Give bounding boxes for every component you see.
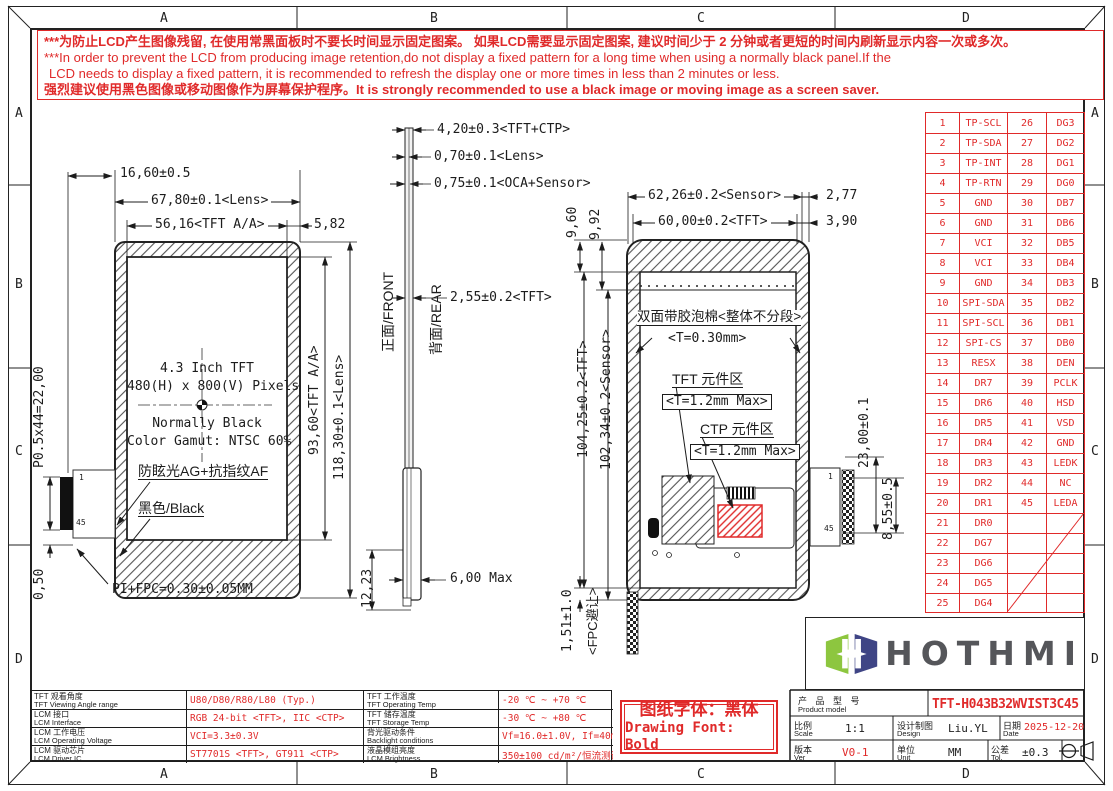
pin-table-cell: DG5 — [959, 573, 1007, 593]
pin-table-cell: GND — [959, 273, 1007, 293]
pin-table-cell: PCLK — [1046, 373, 1084, 393]
grid-letter-top-c: C — [697, 11, 705, 26]
pin-table-cell: 14 — [926, 373, 959, 393]
pin-table-cell: DR4 — [959, 433, 1007, 453]
spec-label-en: LCM Brightness — [367, 755, 495, 763]
pin-table-cell — [1046, 533, 1084, 553]
scale-label-en: Scale — [794, 729, 813, 738]
spec-value-cell: RGB 24-bit <TFT>, IIC <CTP> — [186, 709, 363, 727]
ctp-component-area-label: CTP 元件区 — [700, 422, 774, 438]
product-model-label-en: Product model — [798, 705, 846, 714]
pin-table-cell: DG6 — [959, 553, 1007, 573]
spec-value-text: ST7701S <TFT>, GT911 <CTP> — [190, 749, 360, 760]
pin-table-cell: 10 — [926, 293, 959, 313]
foam-thickness-label: <T=0.30mm> — [668, 332, 746, 346]
pin-table-cell: 44 — [1007, 473, 1046, 493]
pin-table-cell: TP-SDA — [959, 133, 1007, 153]
pin-table-cell: SPI-SCL — [959, 313, 1007, 333]
design-label-en: Design — [897, 729, 920, 738]
pin-table-cell: DEN — [1046, 353, 1084, 373]
pin-table-cell: TP-RTN — [959, 173, 1007, 193]
pin-table-cell: DB6 — [1046, 213, 1084, 233]
font-note-cn: 图纸字体：黑体 — [640, 700, 759, 720]
warning-line-4: 强烈建议使用黑色图像或移动图像作为屏幕保护程序。It is strongly r… — [44, 82, 1097, 98]
grid-letter-left-d: D — [15, 652, 23, 667]
grid-letter-right-a: A — [1091, 106, 1099, 121]
pin-table-cell: 5 — [926, 193, 959, 213]
pin-table-cell: 20 — [926, 493, 959, 513]
dim-active-area-height: 93,60<TFT A/A> — [308, 345, 322, 455]
retention-warning-box: ***为防止LCD产生图像残留, 在使用常黑面板时不要长时间显示固定图案。 如果… — [37, 30, 1104, 100]
pin-table-cell: 38 — [1007, 353, 1046, 373]
pin-table-cell — [1046, 593, 1084, 613]
pin-table-cell — [1007, 593, 1046, 613]
dim-fpc-gap: 1,51±1.0 — [561, 589, 575, 652]
grid-letter-left-c: C — [15, 444, 23, 459]
pin-table-cell: 23 — [926, 553, 959, 573]
pin-table-cell: 32 — [1007, 233, 1046, 253]
grid-letter-right-c: C — [1091, 444, 1099, 459]
tolerance-value: ±0.3 — [1022, 746, 1049, 759]
pin-table-cell: SPI-SDA — [959, 293, 1007, 313]
pin-table-cell: 39 — [1007, 373, 1046, 393]
foam-label: 双面带胶泡棉<整体不分段> — [637, 310, 801, 326]
pin-table-cell: DR1 — [959, 493, 1007, 513]
pin-table-cell: DG0 — [1046, 173, 1084, 193]
pin-table-cell: 37 — [1007, 333, 1046, 353]
pin-table-cell: 13 — [926, 353, 959, 373]
dim-total-thickness: 4,20±0.3<TFT+CTP> — [437, 123, 570, 137]
fpc-clearance-label: <FPC避让> — [586, 588, 600, 655]
spec-value-text: U80/D80/R80/L80 (Typ.) — [190, 695, 360, 706]
grid-letter-top-b: B — [430, 11, 438, 26]
pin-table-cell: 30 — [1007, 193, 1046, 213]
rear-side-label: 背面/REAR — [429, 284, 443, 355]
pin-table-cell: DR7 — [959, 373, 1007, 393]
dim-tft-width: 60,00±0.2<TFT> — [655, 215, 771, 229]
pin-table-cell — [1007, 553, 1046, 573]
pin-table-cell: DB7 — [1046, 193, 1084, 213]
scale-value: 1:1 — [845, 722, 865, 735]
dim-sensor-height: 102,34±0.2<Sensor> — [600, 329, 614, 470]
dim-tft-thickness: 2,55±0.2<TFT> — [450, 291, 552, 305]
grid-letter-bottom-a: A — [160, 767, 168, 782]
dim-lens-height: 118,30±0.1<Lens> — [333, 355, 347, 480]
spec-label-en: TFT Viewing Angle range — [34, 701, 183, 709]
warning-line-2: ***In order to prevent the LCD from prod… — [44, 50, 1097, 66]
pin-table-cell: 28 — [1007, 153, 1046, 173]
pin-table-cell: DB3 — [1046, 273, 1084, 293]
front-side-label: 正面/FRONT — [381, 272, 395, 352]
pin-table-cell: 45 — [1007, 493, 1046, 513]
pin-table-cell: 29 — [1007, 173, 1046, 193]
spec-label-cell: TFT 观看角度TFT Viewing Angle range — [31, 691, 186, 709]
grid-letter-left-b: B — [15, 277, 23, 292]
pin-table-cell: SPI-CS — [959, 333, 1007, 353]
pin-table-cell: 41 — [1007, 413, 1046, 433]
grid-letter-bottom-d: D — [962, 767, 970, 782]
unit-label-en: Unit — [897, 753, 910, 762]
pin-table-cell: VCI — [959, 253, 1007, 273]
spec-label-en: TFT Storage Temp — [367, 719, 495, 727]
dim-bottom-gap: 0,50 — [33, 569, 47, 600]
pin-table-cell: 33 — [1007, 253, 1046, 273]
pin-table-cell: 34 — [1007, 273, 1046, 293]
dim-oca-thickness: 0,75±0.1<OCA+Sensor> — [434, 177, 591, 191]
dim-connector-height-2: 8,55±0.5 — [882, 477, 896, 540]
pin-table-cell: DG2 — [1046, 133, 1084, 153]
pin-table-cell: 26 — [1007, 113, 1046, 133]
dim-active-area-width: 56,16<TFT A/A> — [152, 218, 268, 232]
dim-side-bottom: 12,23 — [361, 569, 375, 608]
fpc-pin-1-label: 1 — [79, 473, 84, 482]
pin-table-cell: DG3 — [1046, 113, 1084, 133]
pin-table-cell: 24 — [926, 573, 959, 593]
dim-top-offset-2: 9,92 — [589, 209, 603, 240]
pin-table-cell: 11 — [926, 313, 959, 333]
panel-mode-label: Normally Black — [127, 417, 287, 431]
pin-table-cell: 1 — [926, 113, 959, 133]
engineering-drawing-page: { "page": { "grid_letters": ["A", "B", "… — [0, 0, 1113, 791]
pin-table-cell: DR0 — [959, 513, 1007, 533]
spec-label-cell: LCM 接口LCM Interface — [31, 709, 186, 727]
pin-table-cell: 31 — [1007, 213, 1046, 233]
tolerance-label-en: Tol. — [991, 753, 1003, 762]
pin-table-cell: VSD — [1046, 413, 1084, 433]
pin-table-cell: LEDA — [1046, 493, 1084, 513]
pin-table-cell: RESX — [959, 353, 1007, 373]
pin-table-cell: 18 — [926, 453, 959, 473]
tft-component-area-label: TFT 元件区 — [672, 372, 743, 388]
pin-table-cell: 17 — [926, 433, 959, 453]
pin-table-cell: TP-SCL — [959, 113, 1007, 133]
grid-letter-bottom-b: B — [430, 767, 438, 782]
pin-table-cell: DB5 — [1046, 233, 1084, 253]
pin-table-cell: 35 — [1007, 293, 1046, 313]
pin-table-cell: DG1 — [1046, 153, 1084, 173]
drawing-font-note-box: 图纸字体：黑体 Drawing Font: Bold — [620, 700, 778, 754]
pin-table-cell: 40 — [1007, 393, 1046, 413]
fpc-thickness-label: PI+FPC=0.30±0.05MM — [112, 583, 253, 597]
pin-table: 1TP-SCL26DG32TP-SDA27DG23TP-INT28DG14TP-… — [925, 112, 1085, 613]
pin-table-cell: DR5 — [959, 413, 1007, 433]
spec-value-text: RGB 24-bit <TFT>, IIC <CTP> — [190, 713, 360, 724]
dim-module-thickness: 6,00 Max — [450, 572, 513, 586]
spec-value-text: -20 ℃ ~ +70 ℃ — [502, 695, 610, 706]
spec-label-cell: TFT 储存温度TFT Storage Temp — [363, 709, 498, 727]
logo-wordmark: HOTHMI — [885, 634, 1084, 673]
dim-connector-height-1: 23,00±0.1 — [858, 398, 872, 468]
pin-table-cell: GND — [959, 193, 1007, 213]
spec-label-en: TFT Operating Temp — [367, 701, 495, 709]
pin-table-cell: 2 — [926, 133, 959, 153]
panel-gamut-label: Color Gamut: NTSC 60% — [127, 435, 287, 449]
panel-size-label: 4.3 Inch TFT — [127, 362, 287, 376]
panel-resolution-label: 480(H) x 800(V) Pixels — [127, 380, 287, 394]
font-note-en: Drawing Font: Bold — [625, 720, 773, 754]
grid-letter-bottom-c: C — [697, 767, 705, 782]
product-model-value: TFT-H043B32WVIST3C45 — [932, 697, 1079, 712]
warning-line-3: LCD needs to display a fixed pattern, it… — [44, 66, 1097, 82]
rear-pin-1-label: 1 — [828, 472, 833, 481]
spec-value-cell: ST7701S <TFT>, GT911 <CTP> — [186, 745, 363, 763]
pin-table-cell: 4 — [926, 173, 959, 193]
pin-table-cell: 3 — [926, 153, 959, 173]
tft-component-thickness-label: <T=1.2mm Max> — [662, 394, 772, 410]
spec-value-cell: U80/D80/R80/L80 (Typ.) — [186, 691, 363, 709]
spec-value-cell: -30 ℃ ~ +80 ℃ — [498, 709, 613, 727]
dim-lens-width: 67,80±0.1<Lens> — [148, 194, 271, 208]
pin-table-cell: 8 — [926, 253, 959, 273]
dim-sensor-width: 62,26±0.2<Sensor> — [645, 189, 784, 203]
pin-table-cell: 19 — [926, 473, 959, 493]
pin-table-cell: 42 — [1007, 433, 1046, 453]
pin-table-cell: VCI — [959, 233, 1007, 253]
pin-table-cell: GND — [1046, 433, 1084, 453]
spec-value-cell: 350±100 cd/m²/恒流测试 — [498, 745, 613, 763]
pin-table-cell: DB4 — [1046, 253, 1084, 273]
dim-fpc-offset: 16,60±0.5 — [120, 167, 190, 181]
spec-label-cell: LCM 驱动芯片LCM Driver IC — [31, 745, 186, 763]
version-label-en: Ver — [794, 753, 805, 762]
pin-table-cell: DR3 — [959, 453, 1007, 473]
pin-table-cell: NC — [1046, 473, 1084, 493]
pin-table-cell: DB2 — [1046, 293, 1084, 313]
pin-table-cell: 21 — [926, 513, 959, 533]
pin-table-cell — [1007, 533, 1046, 553]
pin-table-cell: 15 — [926, 393, 959, 413]
black-color-label: 黑色/Black — [138, 501, 204, 517]
dim-lens-thickness: 0,70±0.1<Lens> — [434, 150, 544, 164]
grid-letter-left-a: A — [15, 106, 23, 121]
design-value: Liu.YL — [948, 722, 988, 735]
pin-table-cell: GND — [959, 213, 1007, 233]
ctp-component-thickness-label: <T=1.2mm Max> — [690, 444, 800, 460]
spec-label-en: Backlight conditions — [367, 737, 495, 745]
pin-table-cell: LEDK — [1046, 453, 1084, 473]
spec-label-cell: LCM 工作电压LCM Operating Voltage — [31, 727, 186, 745]
pin-table-cell — [1007, 513, 1046, 533]
pin-table-cell: 27 — [1007, 133, 1046, 153]
grid-letter-right-b: B — [1091, 277, 1099, 292]
pin-table-cell: DR6 — [959, 393, 1007, 413]
pin-table-cell — [1046, 513, 1084, 533]
spec-table: TFT 观看角度TFT Viewing Angle rangeU80/D80/R… — [30, 690, 612, 762]
pin-table-cell: 22 — [926, 533, 959, 553]
spec-label-en: LCM Interface — [34, 719, 183, 727]
grid-letter-top-d: D — [962, 11, 970, 26]
date-value: 2025-12-20 — [1024, 722, 1084, 733]
spec-label-cell: 背光驱动条件Backlight conditions — [363, 727, 498, 745]
dim-tft-height: 104,25±0.2<TFT> — [577, 341, 591, 458]
hothmi-logo-icon — [824, 621, 879, 687]
spec-label-en: LCM Driver IC — [34, 755, 183, 763]
spec-value-text: VCI=3.3±0.3V — [190, 731, 360, 742]
warning-line-1: ***为防止LCD产生图像残留, 在使用常黑面板时不要长时间显示固定图案。 如果… — [44, 34, 1097, 50]
pin-table-cell: 7 — [926, 233, 959, 253]
pin-table-cell: HSD — [1046, 393, 1084, 413]
date-label-en: Date — [1003, 729, 1019, 738]
pin-table-cell: DG4 — [959, 593, 1007, 613]
spec-value-cell: Vf=16.0±1.0V, If=40mA — [498, 727, 613, 745]
spec-value-text: Vf=16.0±1.0V, If=40mA — [502, 731, 610, 742]
spec-value-cell: -20 ℃ ~ +70 ℃ — [498, 691, 613, 709]
pin-table-cell — [1007, 573, 1046, 593]
pin-table-cell: DR2 — [959, 473, 1007, 493]
spec-value-text: 350±100 cd/m²/恒流测试 — [502, 748, 610, 762]
pin-table-cell: 9 — [926, 273, 959, 293]
pin-table-cell — [1046, 553, 1084, 573]
grid-letter-right-d: D — [1091, 652, 1099, 667]
pin-table-cell: DB1 — [1046, 313, 1084, 333]
pin-table-cell: 36 — [1007, 313, 1046, 333]
spec-label-cell: 液晶模组亮度LCM Brightness — [363, 745, 498, 763]
spec-label-en: LCM Operating Voltage — [34, 737, 183, 745]
ag-af-coating-label: 防眩光AG+抗指纹AF — [138, 464, 268, 480]
version-value: V0-1 — [842, 746, 869, 759]
dim-right-margin: 5,82 — [314, 218, 345, 232]
dim-top-offset-1: 9,60 — [566, 207, 580, 238]
pin-table-cell: DG7 — [959, 533, 1007, 553]
pin-table-cell — [1046, 573, 1084, 593]
fpc-pin-45-label: 45 — [76, 518, 86, 527]
spec-value-text: -30 ℃ ~ +80 ℃ — [502, 713, 610, 724]
pin-table-cell: 16 — [926, 413, 959, 433]
pin-table-cell: DB0 — [1046, 333, 1084, 353]
pin-table-cell: 25 — [926, 593, 959, 613]
dim-pin-pitch: P0.5x44=22,00 — [33, 366, 47, 468]
pin-table-cell: 12 — [926, 333, 959, 353]
spec-label-cell: TFT 工作温度TFT Operating Temp — [363, 691, 498, 709]
dim-right-offset-2: 3,90 — [826, 215, 857, 229]
dim-right-offset-1: 2,77 — [826, 189, 857, 203]
grid-letter-top-a: A — [160, 11, 168, 26]
pin-table-cell: 43 — [1007, 453, 1046, 473]
pin-table-cell: 6 — [926, 213, 959, 233]
pin-table-cell: TP-INT — [959, 153, 1007, 173]
rear-pin-45-label: 45 — [824, 524, 834, 533]
spec-value-cell: VCI=3.3±0.3V — [186, 727, 363, 745]
unit-value: MM — [948, 746, 961, 759]
logo-box: HOTHMI — [805, 617, 1085, 690]
